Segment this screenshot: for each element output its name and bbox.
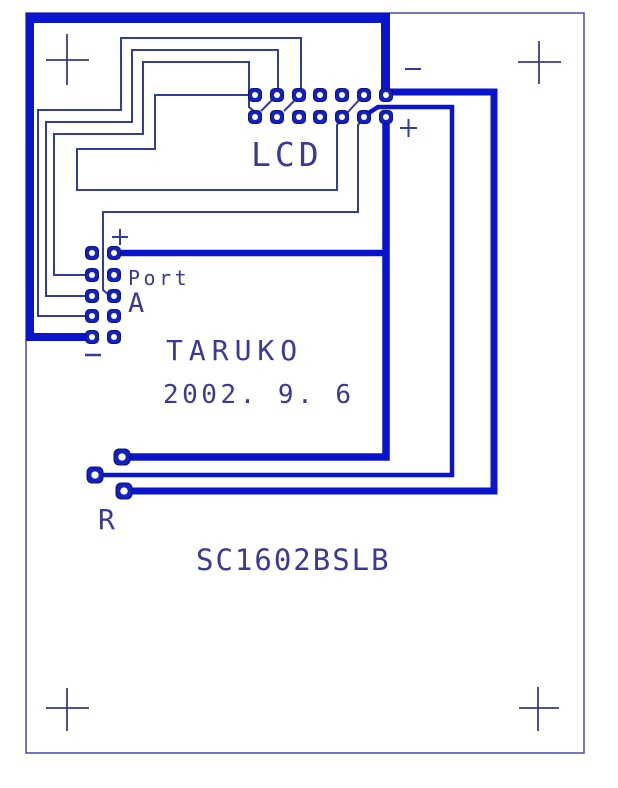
label-lcd: LCD — [251, 138, 323, 171]
thick-bar-top-drop — [381, 13, 390, 95]
lcd-connector-pad-hole — [361, 92, 367, 98]
thick-bar-left — [26, 13, 34, 341]
label-port: Port — [128, 268, 190, 288]
label-r: R — [98, 506, 115, 534]
thin-trace-c2 — [46, 50, 278, 296]
r-pad-hole — [120, 487, 127, 494]
lcd-connector-pad-hole — [317, 114, 323, 120]
port-connector-pad-hole — [89, 272, 95, 278]
thin-trace-c3 — [54, 62, 255, 275]
port-connector-pad-hole — [89, 250, 95, 256]
port-connector-pad-hole — [111, 313, 117, 319]
label-taruko: TARUKO — [166, 337, 303, 365]
thick-bar-top — [26, 13, 390, 23]
lcd-connector-pad-hole — [252, 92, 258, 98]
pcb-layout-canvas: LCD Port A TARUKO 2002. 9. 6 R SC1602BSL… — [0, 0, 618, 788]
lcd-connector-pad-hole — [317, 92, 323, 98]
lcd-connector-pad-hole — [274, 114, 280, 120]
lcd-connector-pad-hole — [296, 114, 302, 120]
port-connector-pad-hole — [111, 334, 117, 340]
lcd-connector-pad-hole — [252, 114, 258, 120]
port-connector-pad-hole — [89, 313, 95, 319]
thin-stub-d2 — [284, 100, 295, 111]
lcd-connector-pad-hole — [339, 114, 345, 120]
lcd-connector-pad-hole — [383, 114, 389, 120]
label-date: 2002. 9. 6 — [163, 382, 355, 408]
thick-feed-port-minus — [26, 333, 92, 341]
lcd-connector-pad-hole — [274, 92, 280, 98]
thin-stub-d1 — [261, 100, 272, 111]
r-pad-hole — [118, 453, 125, 460]
lcd-connector-pad-hole — [296, 92, 302, 98]
thin-stub-d3 — [348, 100, 359, 112]
port-connector-pad-hole — [111, 250, 117, 256]
lcd-connector-pad-hole — [339, 92, 345, 98]
r-pad-hole — [91, 471, 98, 478]
lcd-connector-pad-hole — [383, 92, 389, 98]
port-connector-pad-hole — [89, 334, 95, 340]
port-connector-pad-hole — [111, 272, 117, 278]
port-connector-pad-hole — [89, 293, 95, 299]
port-connector-pad-hole — [111, 293, 117, 299]
label-part-number: SC1602BSLB — [196, 546, 391, 575]
lcd-connector-pad-hole — [361, 114, 367, 120]
label-a: A — [128, 290, 144, 317]
